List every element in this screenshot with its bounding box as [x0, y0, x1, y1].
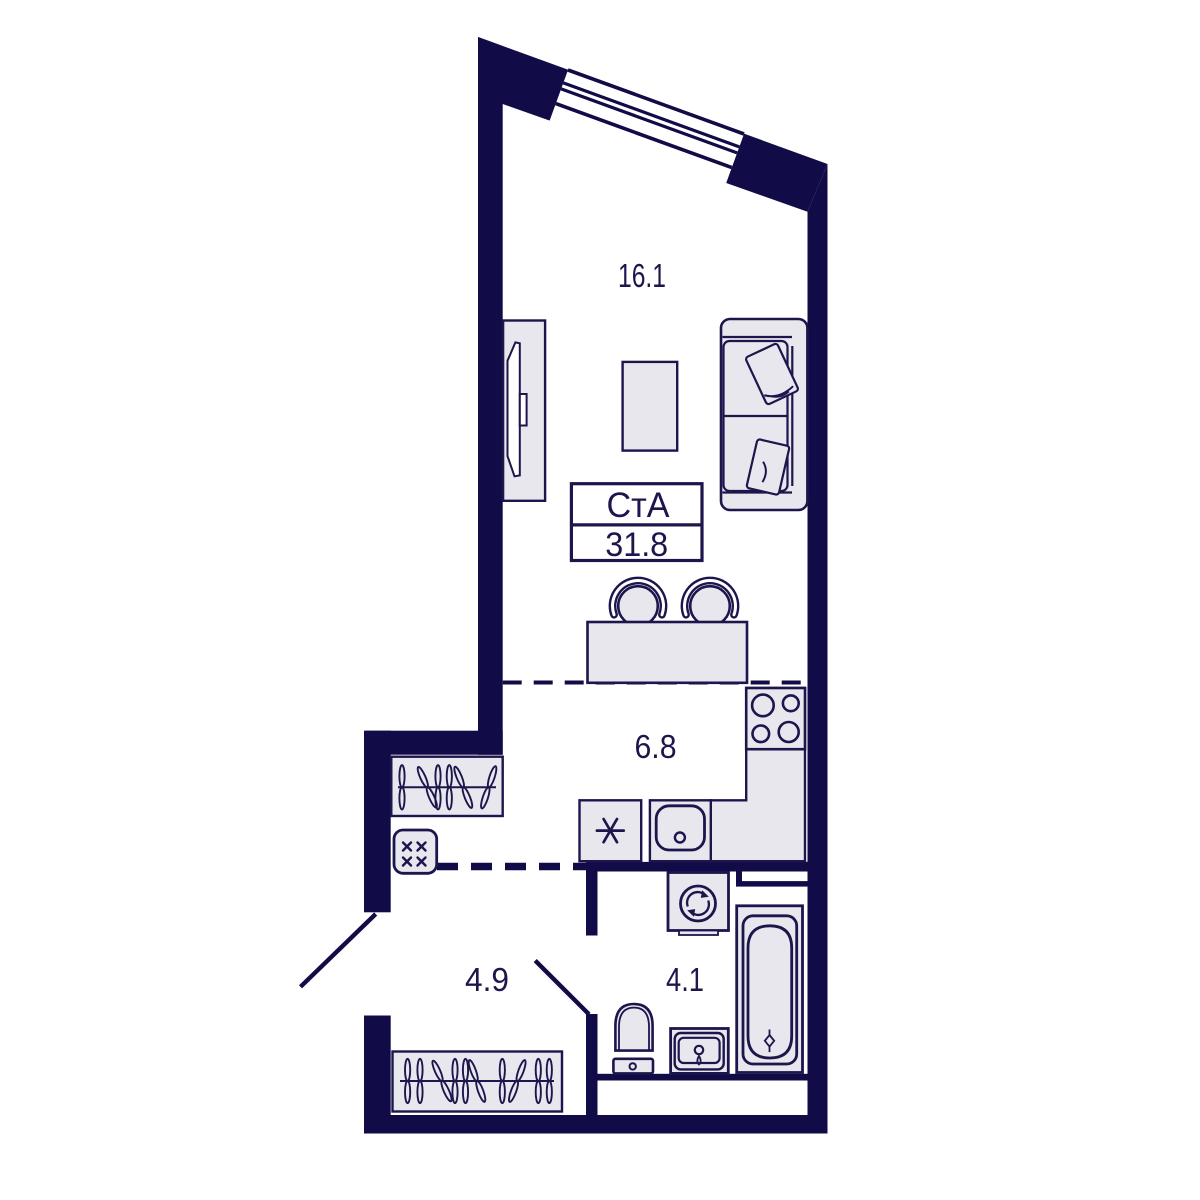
svg-text:31.8: 31.8	[605, 526, 668, 564]
svg-text:4.9: 4.9	[465, 961, 509, 998]
svg-text:6.8: 6.8	[635, 728, 677, 765]
svg-text:4.1: 4.1	[666, 961, 704, 998]
svg-text:СтА: СтА	[607, 486, 671, 525]
svg-text:16.1: 16.1	[618, 257, 666, 294]
